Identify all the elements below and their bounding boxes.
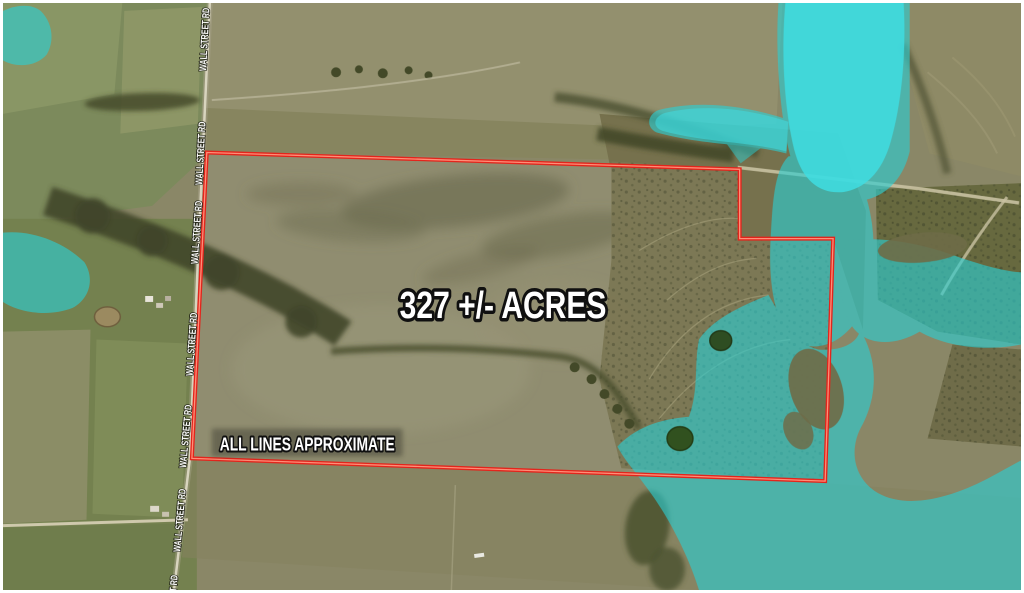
satellite-map-area: WALL STREET RD WALL STREET RD WALL STREE… xyxy=(3,3,1021,590)
lower-pond xyxy=(667,427,693,451)
hill-pond xyxy=(710,331,732,351)
map-canvas: WALL STREET RD WALL STREET RD WALL STREE… xyxy=(3,3,1021,590)
aerial-property-map: WALL STREET RD WALL STREET RD WALL STREE… xyxy=(0,0,1024,593)
acreage-label: 327 +/- ACRES xyxy=(400,284,607,326)
disclaimer-label: ALL LINES APPROXIMATE xyxy=(220,433,395,454)
